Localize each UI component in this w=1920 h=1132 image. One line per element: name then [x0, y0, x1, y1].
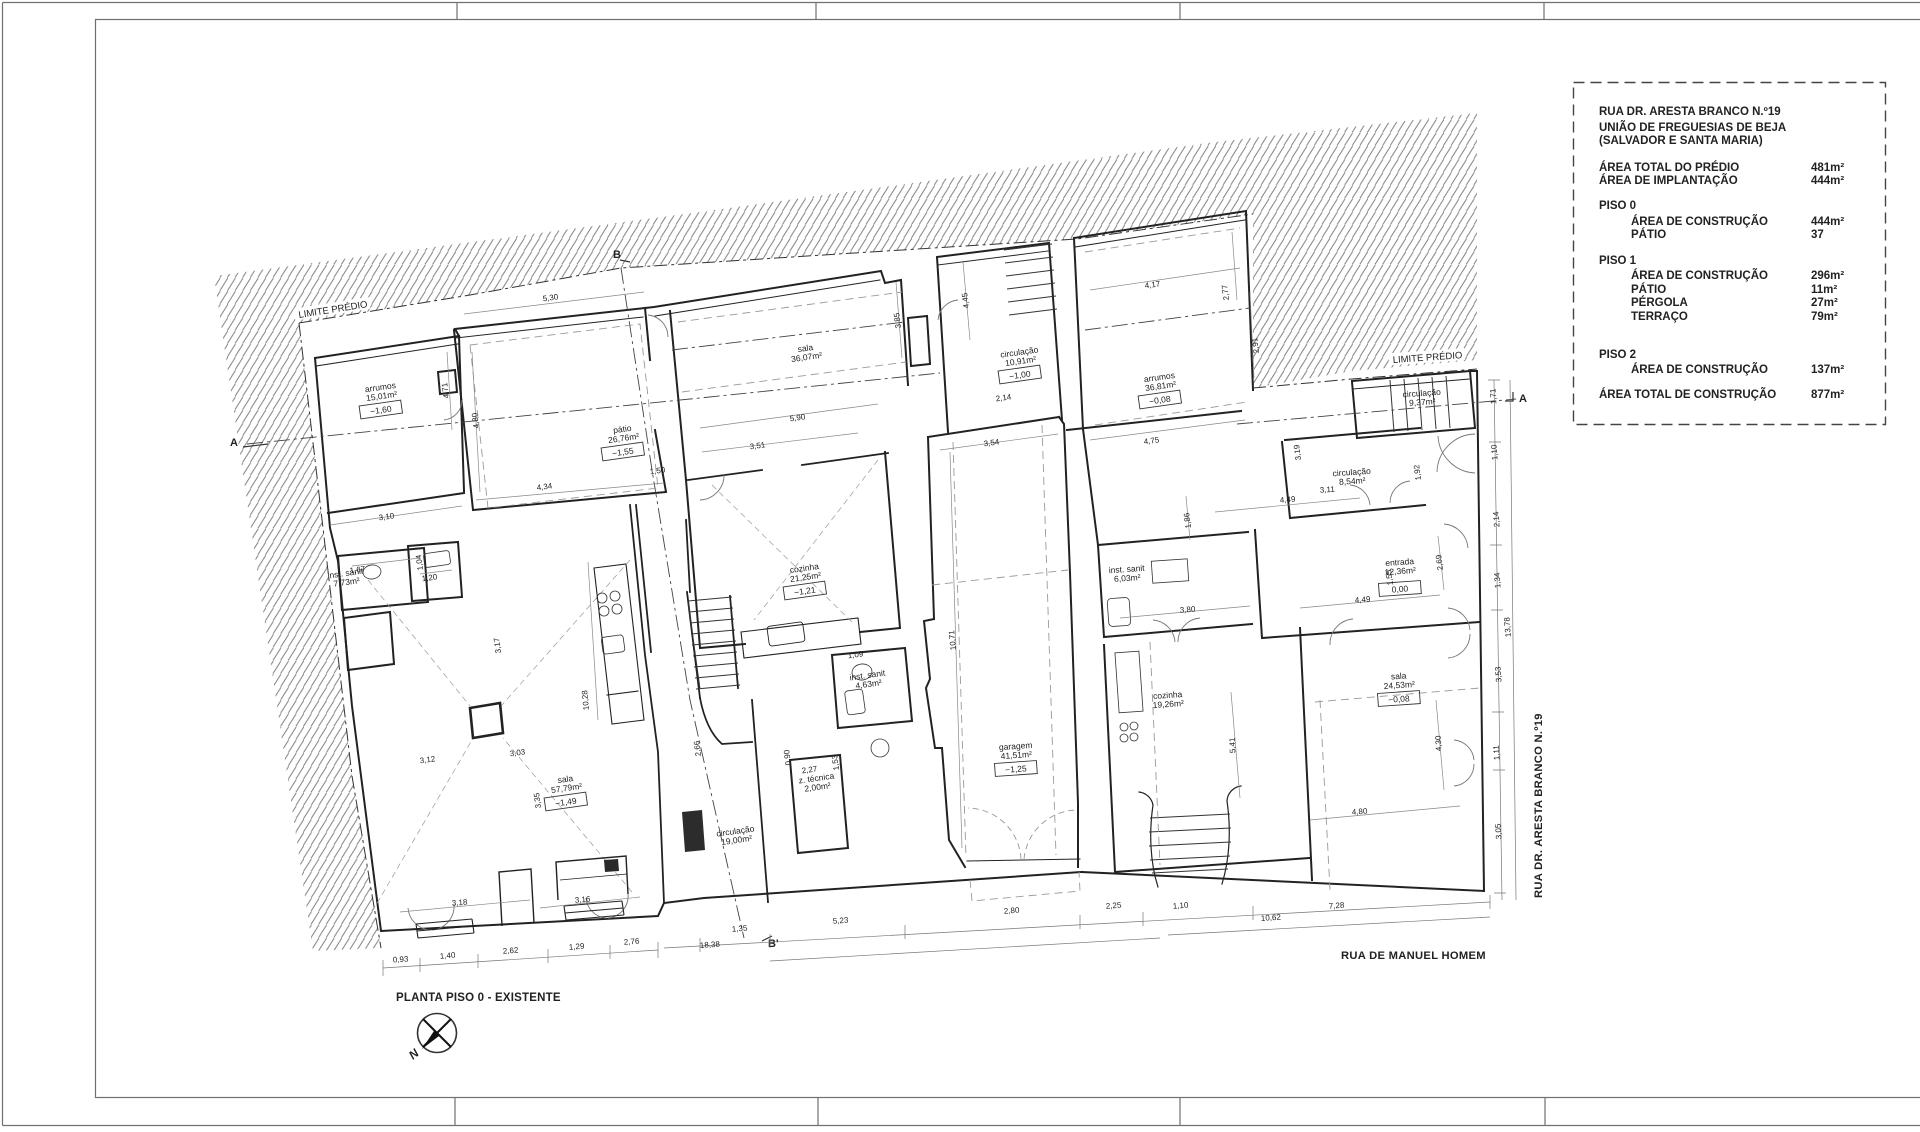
svg-text:18,38: 18,38 [700, 940, 721, 950]
svg-text:5,23: 5,23 [833, 916, 850, 926]
svg-text:PÁTIO: PÁTIO [1631, 228, 1666, 241]
svg-text:(SALVADOR E SANTA MARIA): (SALVADOR E SANTA MARIA) [1599, 135, 1763, 147]
svg-text:ÁREA DE CONSTRUÇÃO: ÁREA DE CONSTRUÇÃO [1631, 269, 1768, 282]
svg-text:RUA DR. ARESTA BRANCO N.º19: RUA DR. ARESTA BRANCO N.º19 [1599, 106, 1781, 118]
svg-text:PLANTA PISO 0 - EXISTENTE: PLANTA PISO 0 - EXISTENTE [396, 992, 561, 1004]
svg-text:A: A [1519, 393, 1527, 405]
svg-text:10,28: 10,28 [580, 689, 591, 710]
svg-text:10,62: 10,62 [1261, 913, 1282, 923]
svg-text:2,62: 2,62 [503, 946, 520, 956]
svg-text:444m²: 444m² [1811, 175, 1844, 187]
svg-text:1,35: 1,35 [732, 924, 749, 934]
svg-text:11m²: 11m² [1811, 284, 1837, 296]
svg-text:1,10: 1,10 [1489, 444, 1499, 461]
svg-text:2,80: 2,80 [1004, 906, 1021, 916]
svg-text:7,28: 7,28 [1329, 901, 1346, 911]
svg-text:2,14: 2,14 [1491, 511, 1501, 528]
svg-text:ÁREA DE CONSTRUÇÃO: ÁREA DE CONSTRUÇÃO [1631, 363, 1768, 376]
svg-text:481m²: 481m² [1811, 162, 1844, 174]
svg-text:3,16: 3,16 [575, 895, 592, 905]
svg-text:3,18: 3,18 [452, 898, 469, 908]
svg-text:A: A [230, 437, 238, 449]
svg-text:2,25: 2,25 [1106, 901, 1123, 911]
svg-text:37: 37 [1811, 229, 1824, 241]
svg-text:−1,25: −1,25 [1005, 763, 1027, 774]
svg-text:4,30: 4,30 [1434, 735, 1444, 752]
svg-text:296m²: 296m² [1811, 270, 1844, 282]
svg-text:10,71: 10,71 [947, 629, 958, 650]
svg-text:79m²: 79m² [1811, 311, 1838, 323]
svg-text:1,10: 1,10 [1173, 901, 1190, 911]
svg-text:1,40: 1,40 [440, 951, 457, 961]
svg-text:ÁREA TOTAL DE CONSTRUÇÃO: ÁREA TOTAL DE CONSTRUÇÃO [1599, 388, 1776, 401]
svg-text:444m²: 444m² [1811, 216, 1844, 228]
svg-text:1,29: 1,29 [569, 942, 586, 952]
svg-text:ÁREA DE CONSTRUÇÃO: ÁREA DE CONSTRUÇÃO [1631, 215, 1768, 228]
svg-text:B: B [613, 249, 621, 261]
svg-text:UNIÃO DE FREGUESIAS DE BEJA: UNIÃO DE FREGUESIAS DE BEJA [1599, 121, 1786, 134]
svg-text:4,49: 4,49 [1280, 495, 1297, 505]
svg-text:PISO 0: PISO 0 [1599, 200, 1636, 212]
svg-text:2,76: 2,76 [624, 937, 641, 947]
svg-text:8,54m²: 8,54m² [1339, 475, 1366, 487]
svg-text:4,49: 4,49 [1355, 595, 1372, 605]
svg-text:3,11: 3,11 [1320, 485, 1336, 495]
svg-text:0,93: 0,93 [393, 954, 410, 964]
svg-text:137m²: 137m² [1811, 364, 1844, 376]
svg-text:RUA DE MANUEL HOMEM: RUA DE MANUEL HOMEM [1341, 950, 1486, 962]
svg-text:5,41: 5,41 [1228, 737, 1238, 754]
svg-text:877m²: 877m² [1811, 389, 1844, 401]
svg-text:9,37m²: 9,37m² [1409, 396, 1436, 408]
svg-text:−0,08: −0,08 [1388, 693, 1410, 704]
svg-text:4,80: 4,80 [1352, 807, 1369, 817]
svg-text:1,34: 1,34 [1492, 572, 1502, 589]
svg-text:PÉRGOLA: PÉRGOLA [1631, 296, 1688, 309]
svg-text:6,03m²: 6,03m² [1114, 572, 1141, 584]
svg-text:27m²: 27m² [1811, 297, 1838, 309]
svg-text:3,80: 3,80 [1180, 605, 1197, 615]
svg-text:PISO 2: PISO 2 [1599, 349, 1636, 361]
svg-text:3,53: 3,53 [1493, 666, 1503, 683]
svg-text:1,11: 1,11 [1491, 744, 1501, 760]
svg-text:3,05: 3,05 [1493, 823, 1503, 840]
svg-text:PISO 1: PISO 1 [1599, 255, 1637, 267]
svg-text:13,78: 13,78 [1502, 616, 1512, 637]
svg-text:RUA DR. ARESTA BRANCO N.º19: RUA DR. ARESTA BRANCO N.º19 [1533, 713, 1545, 898]
svg-text:ÁREA DE IMPLANTAÇÃO: ÁREA DE IMPLANTAÇÃO [1599, 174, 1738, 187]
svg-text:1,71: 1,71 [1488, 388, 1498, 405]
svg-text:B': B' [768, 938, 779, 950]
svg-text:PÁTIO: PÁTIO [1631, 283, 1666, 296]
svg-text:TERRAÇO: TERRAÇO [1631, 311, 1688, 323]
svg-text:ÁREA TOTAL DO PRÉDIO: ÁREA TOTAL DO PRÉDIO [1599, 161, 1739, 174]
